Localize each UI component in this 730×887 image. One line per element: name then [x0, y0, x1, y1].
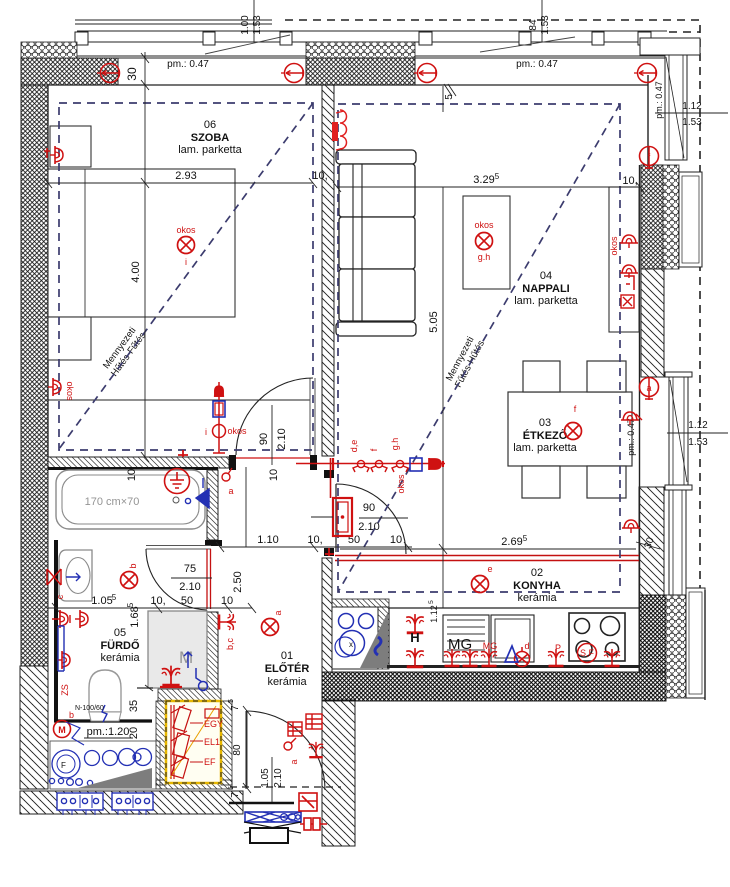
svg-text:okos: okos — [474, 220, 494, 230]
svg-text:lam. parketta: lam. parketta — [513, 442, 577, 454]
svg-text:M: M — [58, 725, 66, 735]
svg-text:kerámia: kerámia — [267, 676, 307, 688]
svg-text:c: c — [55, 594, 65, 599]
svg-text:EGY: EGY — [204, 719, 223, 729]
svg-text:b: b — [128, 563, 138, 568]
svg-text:2.50: 2.50 — [232, 571, 244, 592]
svg-text:MG: MG — [483, 641, 498, 651]
svg-text:80: 80 — [232, 744, 243, 756]
svg-text:pm.: 0.47: pm.: 0.47 — [516, 59, 558, 70]
svg-text:5: 5 — [228, 786, 235, 790]
svg-text:1.05: 1.05 — [260, 768, 271, 788]
svg-text:pm.:1.20: pm.:1.20 — [87, 726, 130, 738]
svg-text:84: 84 — [528, 19, 539, 31]
svg-text:i: i — [205, 427, 207, 437]
svg-text:b: b — [69, 710, 74, 720]
svg-text:2.10: 2.10 — [273, 768, 284, 788]
svg-text:10: 10 — [221, 595, 233, 607]
svg-text:75: 75 — [184, 563, 196, 575]
svg-text:okos: okos — [227, 426, 247, 436]
svg-text:H: H — [410, 630, 419, 645]
svg-text:KONYHA: KONYHA — [513, 580, 561, 592]
svg-text:kerámia: kerámia — [517, 592, 557, 604]
svg-text:SZOBA: SZOBA — [191, 132, 230, 144]
svg-text:4.00: 4.00 — [130, 261, 142, 282]
svg-text:N-100/60: N-100/60 — [75, 705, 104, 712]
svg-text:x: x — [349, 640, 353, 649]
svg-text:10,: 10, — [312, 170, 327, 182]
svg-text:g.h: g.h — [478, 252, 491, 262]
svg-text:5: 5 — [523, 534, 528, 543]
svg-text:170 cm×70: 170 cm×70 — [85, 496, 140, 508]
svg-text:1.10: 1.10 — [257, 534, 278, 546]
svg-text:1.12: 1.12 — [682, 101, 702, 112]
svg-text:a: a — [289, 759, 299, 764]
svg-text:1.53: 1.53 — [540, 15, 551, 35]
svg-text:ZS: ZS — [60, 684, 70, 696]
svg-text:1.68: 1.68 — [129, 606, 141, 627]
svg-text:2.93: 2.93 — [175, 170, 196, 182]
svg-text:pm.: 0.47: pm.: 0.47 — [626, 418, 636, 456]
svg-text:5: 5 — [444, 94, 455, 100]
svg-text:b,c: b,c — [225, 638, 235, 651]
svg-text:06: 06 — [204, 119, 216, 131]
svg-text:2.69: 2.69 — [501, 536, 522, 548]
svg-text:pm.: 0.47: pm.: 0.47 — [654, 81, 664, 119]
svg-text:ELŐTÉR: ELŐTÉR — [265, 662, 310, 675]
svg-text:F: F — [61, 761, 66, 770]
svg-text:10,: 10, — [307, 534, 322, 546]
svg-text:10,: 10, — [622, 175, 637, 187]
svg-text:M: M — [179, 648, 193, 667]
svg-text:1.53: 1.53 — [682, 117, 702, 128]
svg-text:S,F: S,F — [580, 648, 595, 658]
svg-text:1.05: 1.05 — [91, 595, 112, 607]
svg-text:03: 03 — [539, 417, 551, 429]
svg-text:1.53: 1.53 — [252, 15, 263, 35]
svg-text:lam. parketta: lam. parketta — [178, 144, 242, 156]
svg-text:10: 10 — [390, 534, 402, 546]
svg-text:5: 5 — [228, 699, 235, 703]
svg-text:e: e — [487, 564, 492, 574]
svg-text:01: 01 — [281, 650, 293, 662]
svg-text:d: d — [524, 641, 529, 651]
svg-text:3.29: 3.29 — [473, 174, 494, 186]
svg-text:5: 5 — [495, 172, 500, 181]
svg-text:EF: EF — [204, 757, 216, 767]
svg-text:10: 10 — [126, 469, 138, 481]
svg-text:a: a — [273, 610, 283, 615]
svg-text:NAPPALI: NAPPALI — [522, 283, 569, 295]
svg-text:7: 7 — [230, 792, 241, 798]
svg-text:90: 90 — [363, 502, 375, 514]
svg-text:1.12: 1.12 — [688, 420, 708, 431]
svg-text:90: 90 — [258, 433, 270, 445]
svg-text:a: a — [646, 383, 651, 393]
svg-text:7: 7 — [230, 705, 241, 711]
svg-text:5: 5 — [428, 600, 435, 604]
svg-text:2.10: 2.10 — [358, 521, 379, 533]
svg-text:P: P — [555, 643, 561, 653]
svg-text:02: 02 — [531, 567, 543, 579]
svg-text:2.10: 2.10 — [276, 428, 288, 449]
svg-text:10: 10 — [268, 469, 280, 481]
svg-text:5: 5 — [126, 602, 135, 607]
svg-text:1.00: 1.00 — [240, 15, 251, 35]
svg-text:EL1: EL1 — [204, 737, 220, 747]
svg-text:1.12: 1.12 — [429, 605, 439, 623]
svg-text:5.05: 5.05 — [428, 311, 440, 332]
svg-text:05: 05 — [114, 627, 126, 639]
svg-text:10,: 10, — [150, 595, 165, 607]
svg-text:g.h: g.h — [390, 438, 400, 451]
svg-text:20: 20 — [128, 727, 140, 739]
svg-text:1.53: 1.53 — [688, 437, 708, 448]
svg-text:okos: okos — [176, 225, 196, 235]
svg-text:d,e: d,e — [349, 440, 359, 453]
svg-text:35: 35 — [128, 700, 140, 712]
svg-text:30: 30 — [125, 67, 139, 81]
svg-text:i: i — [185, 257, 187, 267]
svg-text:FÜRDŐ: FÜRDŐ — [100, 639, 140, 652]
svg-text:ÉTKEZŐ: ÉTKEZŐ — [523, 429, 568, 442]
svg-text:50: 50 — [181, 595, 193, 607]
svg-text:a: a — [228, 486, 233, 496]
svg-text:okos: okos — [65, 381, 75, 401]
svg-text:pm.: 0.47: pm.: 0.47 — [167, 59, 209, 70]
svg-text:2.10: 2.10 — [179, 581, 200, 593]
svg-text:5: 5 — [112, 593, 117, 602]
svg-text:okos: okos — [609, 236, 619, 256]
svg-text:kerámia: kerámia — [100, 652, 140, 664]
svg-text:04: 04 — [540, 270, 552, 282]
svg-text:okos: okos — [396, 474, 406, 494]
svg-text:lam. parketta: lam. parketta — [514, 295, 578, 307]
